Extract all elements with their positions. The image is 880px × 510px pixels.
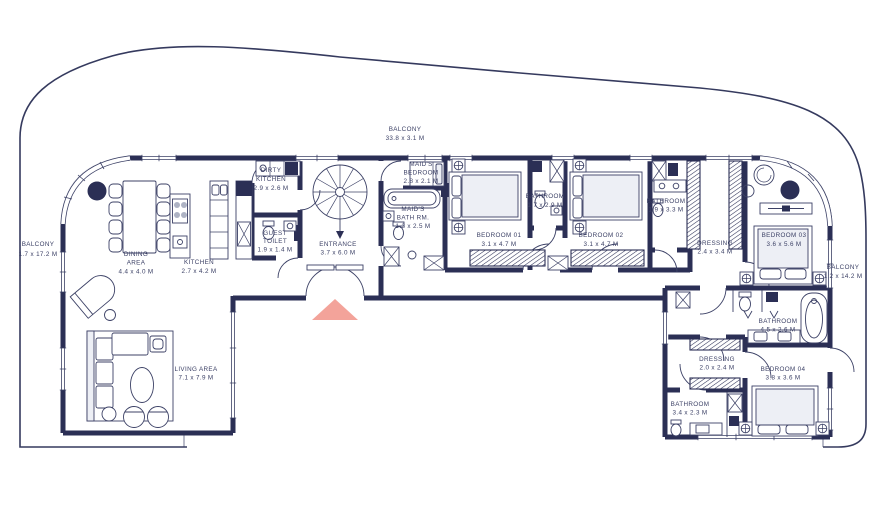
svg-text:1.3 x 2.5 M: 1.3 x 2.5 M xyxy=(396,223,431,230)
svg-text:2.7 x 4.2 M: 2.7 x 4.2 M xyxy=(182,268,217,275)
floor-plan: BALCONY 1.7 x 17.2 M DINING AREA 4.4 x 4… xyxy=(0,0,880,510)
svg-text:2.9 x 2.6 M: 2.9 x 2.6 M xyxy=(254,185,289,192)
label-bathroom-04: BATHROOM 3.4 x 2.3 M xyxy=(671,401,710,417)
bathtub-icon xyxy=(801,293,827,343)
svg-text:33.8 x 3.1 M: 33.8 x 3.1 M xyxy=(386,135,425,142)
wardrobe-icon xyxy=(687,161,700,249)
lounge-chair-icon xyxy=(754,165,774,185)
wardrobe-icon xyxy=(470,250,545,266)
dining-table xyxy=(123,181,156,253)
svg-text:BEDROOM 02: BEDROOM 02 xyxy=(579,232,624,239)
spiral-staircase xyxy=(313,165,367,239)
svg-text:4.4 x 4.0 M: 4.4 x 4.0 M xyxy=(119,269,154,276)
svg-text:BEDROOM: BEDROOM xyxy=(404,170,439,177)
svg-text:BALCONY: BALCONY xyxy=(827,264,860,271)
svg-text:3.1 x 4.7 M: 3.1 x 4.7 M xyxy=(584,241,619,248)
floor-plan-page: BALCONY 1.7 x 17.2 M DINING AREA 4.4 x 4… xyxy=(0,0,880,510)
svg-text:3.1 x 4.7 M: 3.1 x 4.7 M xyxy=(482,241,517,248)
svg-text:GUEST: GUEST xyxy=(263,230,286,237)
label-bathroom-master: BATHROOM 4.5 x 2.6 M xyxy=(759,318,798,334)
label-balcony-top: BALCONY 33.8 x 3.1 M xyxy=(386,126,425,142)
label-bedroom-02: BEDROOM 02 3.1 x 4.7 M xyxy=(579,232,624,248)
svg-text:BALCONY: BALCONY xyxy=(389,126,422,133)
svg-text:MAID'S: MAID'S xyxy=(401,206,424,213)
svg-text:DRESSING: DRESSING xyxy=(699,356,735,363)
svg-text:KITCHEN: KITCHEN xyxy=(256,176,286,183)
planter-icon xyxy=(88,182,107,201)
svg-text:BEDROOM 04: BEDROOM 04 xyxy=(761,366,806,373)
svg-text:3.7 x 6.0 M: 3.7 x 6.0 M xyxy=(321,250,356,257)
svg-text:3.6 x 5.6 M: 3.6 x 5.6 M xyxy=(767,241,802,248)
svg-text:1.7 x 17.2 M: 1.7 x 17.2 M xyxy=(19,251,58,258)
dressing-03-furniture xyxy=(687,161,742,249)
svg-text:MAID'S: MAID'S xyxy=(409,161,432,168)
label-balcony-left: BALCONY 1.7 x 17.2 M xyxy=(19,241,58,258)
label-kitchen: KITCHEN 2.7 x 4.2 M xyxy=(182,259,217,275)
svg-text:2.8 x 2.1 M: 2.8 x 2.1 M xyxy=(404,178,439,185)
svg-text:KITCHEN: KITCHEN xyxy=(184,259,214,266)
label-entrance: ENTRANCE 3.7 x 6.0 M xyxy=(319,241,356,257)
label-bathroom-02: BATHROOM 1.9 x 3.3 M xyxy=(647,198,686,214)
svg-text:1.2 x 14.2 M: 1.2 x 14.2 M xyxy=(824,273,863,280)
svg-text:DINING: DINING xyxy=(124,251,148,258)
svg-text:BATHROOM: BATHROOM xyxy=(671,401,710,408)
svg-text:TOILET: TOILET xyxy=(263,238,287,245)
dining-furniture xyxy=(70,181,170,321)
label-dressing-03: DRESSING 2.4 x 3.4 M xyxy=(697,240,733,256)
svg-text:DIRTY: DIRTY xyxy=(261,167,282,174)
wardrobe-icon xyxy=(690,339,740,350)
svg-text:1.9 x 3.3 M: 1.9 x 3.3 M xyxy=(649,207,684,214)
svg-text:7.1 x 7.9 M: 7.1 x 7.9 M xyxy=(179,375,214,382)
svg-text:1.9 x 1.4 M: 1.9 x 1.4 M xyxy=(258,247,293,254)
svg-text:BATHROOM: BATHROOM xyxy=(647,198,686,205)
svg-text:BALCONY: BALCONY xyxy=(22,241,55,248)
svg-text:BATHROOM: BATHROOM xyxy=(526,193,565,200)
svg-text:2.4 x 3.4 M: 2.4 x 3.4 M xyxy=(698,249,733,256)
label-maids-bath: MAID'S BATH RM. 1.3 x 2.5 M xyxy=(396,206,431,230)
bedroom-04-furniture xyxy=(739,386,829,436)
label-guest-toilet: GUEST TOILET 1.9 x 1.4 M xyxy=(258,230,293,254)
living-furniture xyxy=(87,331,173,428)
svg-text:BEDROOM 03: BEDROOM 03 xyxy=(762,232,807,239)
svg-text:ENTRANCE: ENTRANCE xyxy=(319,241,356,248)
wardrobe-icon xyxy=(729,161,742,249)
svg-text:DRESSING: DRESSING xyxy=(697,240,733,247)
svg-text:4.5 x 2.6 M: 4.5 x 2.6 M xyxy=(761,327,796,334)
label-bedroom-01: BEDROOM 01 3.1 x 4.7 M xyxy=(477,232,522,248)
svg-text:AREA: AREA xyxy=(127,260,146,267)
label-dining: DINING AREA 4.4 x 4.0 M xyxy=(119,251,154,276)
kitchen-furniture xyxy=(170,181,252,259)
svg-text:1.7 x 2.9 M: 1.7 x 2.9 M xyxy=(528,202,563,209)
svg-text:2.0 x 2.4 M: 2.0 x 2.4 M xyxy=(700,365,735,372)
planter-icon xyxy=(781,181,800,200)
svg-text:BEDROOM 01: BEDROOM 01 xyxy=(477,232,522,239)
wardrobe-icon xyxy=(690,378,740,389)
window-living-east xyxy=(230,312,236,418)
svg-text:LIVING AREA: LIVING AREA xyxy=(174,366,217,373)
svg-text:BATH RM.: BATH RM. xyxy=(397,215,429,222)
entrance-marker xyxy=(312,299,358,320)
entrance-door xyxy=(306,265,364,296)
wardrobe-icon xyxy=(571,250,644,266)
svg-text:BATHROOM: BATHROOM xyxy=(759,318,798,325)
label-dressing-04: DRESSING 2.0 x 2.4 M xyxy=(699,356,735,372)
svg-text:3.4 x 2.3 M: 3.4 x 2.3 M xyxy=(673,410,708,417)
grand-piano xyxy=(70,270,120,321)
label-living: LIVING AREA 7.1 x 7.9 M xyxy=(174,366,217,382)
coffee-table xyxy=(131,368,154,403)
label-bedroom-04: BEDROOM 04 3.8 x 3.6 M xyxy=(761,366,806,382)
svg-text:3.8 x 3.6 M: 3.8 x 3.6 M xyxy=(766,375,801,382)
